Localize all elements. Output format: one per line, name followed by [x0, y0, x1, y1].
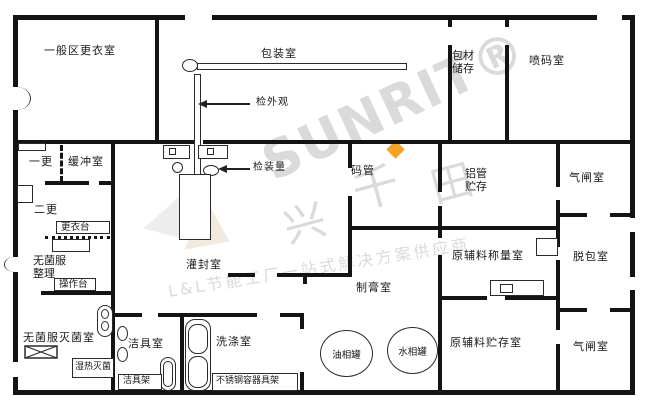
wall — [610, 213, 634, 217]
wall — [228, 273, 255, 277]
wall — [158, 313, 257, 317]
wall — [610, 308, 634, 312]
wall — [448, 19, 452, 27]
room-label-material-storage: 包材储存 — [452, 49, 478, 75]
room-label-sterile-sorting: 无菌服整理 — [33, 254, 71, 280]
cleaning-tool-rack-label: 洁具架 — [123, 377, 150, 387]
arrow-head — [198, 100, 207, 108]
wall — [438, 206, 442, 238]
wall — [505, 296, 560, 300]
oil-phase-tank-label: 油相罐 — [332, 347, 361, 361]
conveyor-belt-horizontal — [197, 63, 407, 70]
arrow-head — [218, 165, 227, 173]
room-label-washing: 洗涤室 — [216, 335, 252, 348]
wall — [13, 272, 18, 362]
filling-machine — [179, 174, 211, 240]
machine-cabinet — [163, 145, 190, 159]
wall — [277, 273, 352, 277]
wall — [300, 372, 304, 393]
room-label-packaging: 包装室 — [261, 47, 297, 60]
wall — [630, 290, 635, 395]
wall — [505, 19, 509, 27]
wall — [303, 273, 307, 284]
wall — [556, 308, 587, 312]
bench — [52, 239, 90, 252]
watermark-brand: SUNRIT® — [253, 19, 536, 193]
door-arc — [4, 257, 14, 272]
annotation-check-appearance: 检外观 — [256, 97, 289, 109]
sink-bowl — [101, 321, 109, 331]
wall — [438, 255, 442, 393]
wall — [556, 213, 587, 217]
room-label-raw-storage: 原辅料贮存室 — [450, 336, 522, 349]
washing-tub — [188, 324, 208, 354]
weighing-bench-scale — [500, 284, 513, 293]
room-label-airlock-bottom: 气闸室 — [573, 340, 609, 353]
pass-through-dashed-wall — [60, 145, 63, 182]
sink-bowl — [117, 347, 128, 362]
wall — [505, 45, 509, 142]
machine-button — [169, 148, 176, 155]
operating-bench-label: 操作台 — [59, 280, 88, 290]
machine-button — [207, 148, 214, 155]
room-label-paste-making: 制膏室 — [356, 281, 392, 294]
watermark-cjk: 千 — [344, 147, 406, 223]
annotation-check-fill: 检装量 — [253, 162, 286, 174]
wall — [99, 181, 115, 185]
wall — [348, 226, 560, 230]
conveyor-belt-vertical — [194, 74, 201, 175]
moist-heat-sterilizer-label: 湿热灭菌 — [75, 363, 111, 373]
wall — [556, 260, 560, 330]
wall — [630, 15, 635, 218]
water-phase-tank-label: 水相罐 — [398, 344, 427, 358]
room-label-tube-stacking: 码管 — [351, 164, 375, 177]
changing-bench-label: 更衣台 — [61, 223, 90, 233]
stainless-rack-label: 不锈钢容器具架 — [216, 377, 279, 387]
room-label-general-changing: 一般区更衣室 — [44, 44, 116, 57]
wall — [203, 140, 635, 144]
oil-phase-tank: 油相罐 — [320, 330, 373, 377]
wall — [212, 15, 597, 20]
wall — [280, 313, 304, 317]
room-label-buffer: 缓冲室 — [68, 155, 104, 168]
water-phase-tank: 水相罐 — [387, 327, 438, 374]
sink-bowl — [117, 326, 128, 341]
bench — [18, 143, 46, 151]
wall — [438, 296, 487, 300]
conveyor-end-wheel — [182, 59, 198, 72]
wall — [556, 142, 560, 187]
room-label-filling-sealing: 灌封室 — [186, 258, 222, 271]
room-label-aluminum-tube-storage: 铝管贮存 — [465, 167, 491, 193]
wall — [41, 291, 115, 295]
weighing-bench — [490, 280, 544, 296]
machine-dial — [172, 162, 183, 173]
wall — [13, 110, 18, 257]
room-label-sterile-sterilization: 无菌服灭菌室 — [23, 331, 95, 344]
wall — [115, 313, 142, 317]
wash-basin-inner — [163, 361, 173, 387]
weighing-equipment — [536, 238, 558, 256]
room-label-second-change: 二更 — [34, 203, 58, 216]
room-label-coding: 喷码室 — [529, 54, 565, 67]
room-label-depacking: 脱包室 — [573, 250, 609, 263]
wall — [438, 142, 442, 192]
room-label-cleaning-tools: 洁具室 — [128, 337, 164, 350]
wall — [630, 232, 635, 277]
factory-floor-plan: SUNRIT® 兴 千 田 L&L节能工厂一站式解决方案供应商 — [0, 0, 650, 403]
washing-tub — [188, 356, 208, 388]
wall — [556, 344, 560, 393]
wall — [13, 390, 635, 395]
room-label-raw-weighing: 原辅料称量室 — [452, 249, 524, 262]
wall — [111, 142, 115, 393]
room-label-first-change: 一更 — [29, 155, 53, 168]
wall — [45, 181, 89, 185]
autoclave-crossed-box — [24, 345, 58, 359]
arrow-line — [206, 103, 250, 105]
locker — [17, 185, 33, 203]
arrow-line — [226, 168, 250, 170]
wall — [155, 19, 159, 140]
wall — [13, 15, 18, 87]
wall — [13, 15, 185, 20]
room-label-airlock-top: 气闸室 — [569, 171, 605, 184]
sink-bowl — [101, 309, 109, 319]
door-arc — [17, 87, 31, 110]
wall — [180, 315, 184, 393]
wall — [348, 196, 352, 277]
watermark-cjk: 兴 — [276, 186, 332, 256]
